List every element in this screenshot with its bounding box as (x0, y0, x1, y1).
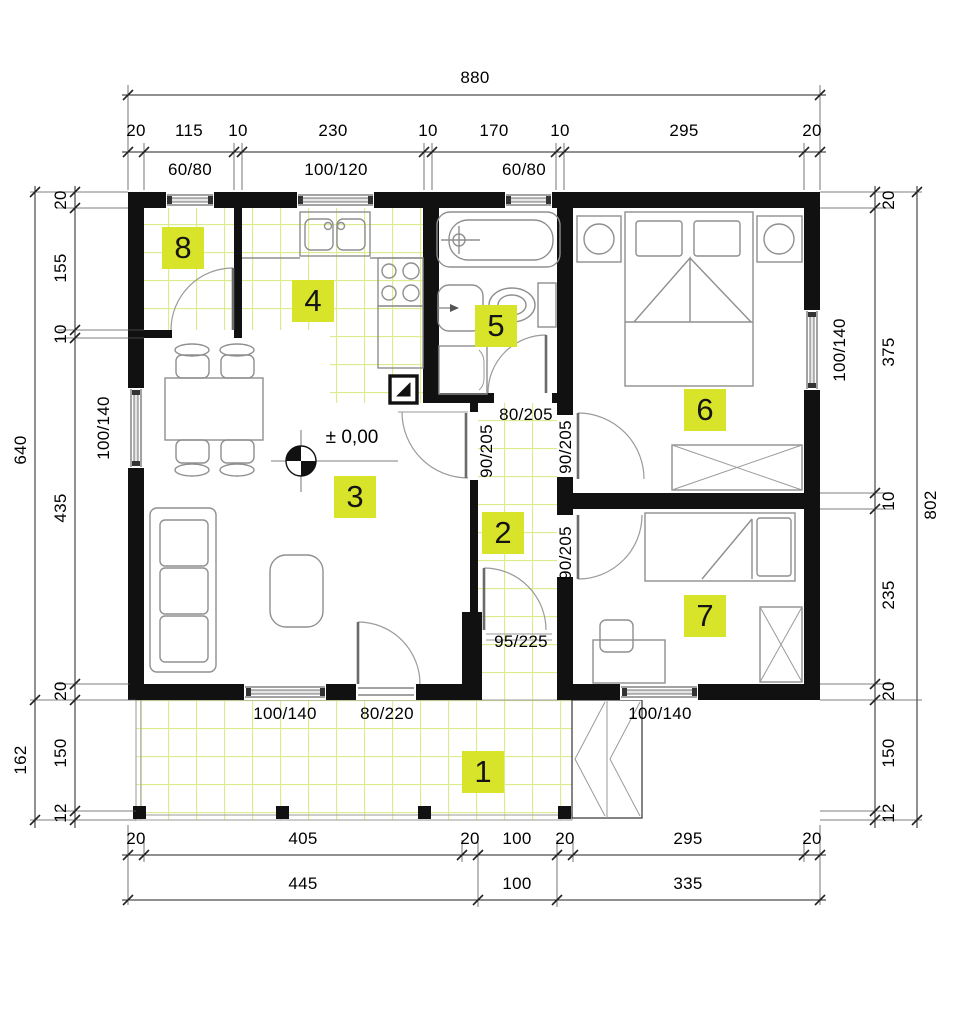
dim-left-t0: 150 (51, 738, 71, 767)
dim-top-4: 10 (418, 121, 438, 141)
window-bed7 (620, 684, 698, 700)
dim-bot-5: 295 (673, 829, 702, 849)
window-bed6 (804, 310, 820, 390)
dim-top-3: 230 (318, 121, 347, 141)
label-door-terrace: 80/220 (360, 704, 414, 724)
label-window-right: 100/140 (830, 318, 850, 382)
dim-right-t0: 150 (879, 738, 899, 767)
dim-bot-1: 405 (288, 829, 317, 849)
wardrobe-bed7 (760, 607, 802, 682)
label-door-entrance: 95/225 (494, 632, 548, 652)
dim-left-0: 20 (51, 190, 71, 210)
dim-left-t1: 12 (51, 803, 71, 823)
boiler-icon (390, 376, 417, 403)
room-label-5: 5 (475, 305, 517, 347)
label-window-left: 100/140 (94, 396, 114, 460)
dim-right-0: 20 (879, 190, 899, 210)
washing-machine (439, 346, 487, 394)
window-kitchen (297, 192, 374, 208)
floor-plan-canvas: 880 20 115 10 230 10 170 10 295 20 60/80… (0, 0, 954, 1024)
dim-left-2: 10 (51, 324, 71, 344)
window-room8 (166, 192, 214, 208)
terrace-door-threshold (356, 684, 416, 700)
nightstand-left (577, 216, 621, 262)
window-bath (505, 192, 552, 208)
label-window-kitchen: 100/120 (304, 160, 368, 180)
room-label-8: 8 (162, 227, 204, 269)
dim-bot-outer-0: 445 (288, 874, 317, 894)
dim-left-terrace: 162 (11, 745, 31, 774)
bedroom6-furniture (577, 212, 802, 490)
dim-bot-6: 20 (802, 829, 822, 849)
room-label-4: 4 (292, 280, 334, 322)
dim-right-1: 375 (879, 337, 899, 366)
dim-right-overall: 802 (921, 490, 941, 519)
dim-bot-4: 20 (555, 829, 575, 849)
desk (593, 620, 665, 683)
dim-bot-2: 20 (460, 829, 480, 849)
dim-left-3: 435 (51, 493, 71, 522)
dim-left-overall: 640 (11, 435, 31, 464)
label-door-hall-living: 90/205 (477, 424, 497, 478)
room-label-1: 1 (462, 751, 504, 793)
wardrobe-bed6 (672, 445, 802, 490)
dim-top-0: 20 (126, 121, 146, 141)
level-mark-label: ± 0,00 (326, 427, 379, 449)
dim-left-1: 155 (51, 253, 71, 282)
room-label-3: 3 (334, 476, 376, 518)
label-window-living-bottom: 100/140 (253, 704, 317, 724)
double-bed (625, 212, 753, 386)
dim-bot-0: 20 (126, 829, 146, 849)
dim-top-7: 295 (669, 121, 698, 141)
label-window-bed7: 100/140 (628, 704, 692, 724)
label-door-bed7: 90/205 (556, 526, 576, 580)
door-bed7 (578, 515, 642, 579)
dim-right-3: 235 (879, 580, 899, 609)
bathtub (437, 212, 560, 267)
dim-overall-width: 880 (460, 68, 489, 88)
window-living-left (128, 388, 144, 468)
dim-top-6: 10 (550, 121, 570, 141)
floor-plan-drawing (0, 0, 954, 1024)
label-door-bath: 80/205 (499, 405, 553, 425)
door-living-hall (398, 412, 468, 478)
dim-left-4: 20 (51, 681, 71, 701)
dim-top-1: 115 (175, 121, 203, 141)
dim-right-4: 20 (879, 681, 899, 701)
sofa (150, 508, 216, 672)
coffee-table (270, 555, 323, 627)
label-window-bath: 60/80 (502, 160, 546, 180)
dim-right-2: 10 (879, 491, 899, 511)
dim-bot-outer-2: 335 (673, 874, 702, 894)
room-label-2: 2 (482, 512, 524, 554)
room-label-7: 7 (684, 595, 726, 637)
dim-top-2: 10 (228, 121, 248, 141)
dim-bot-3: 100 (502, 829, 531, 849)
dining-table (165, 344, 263, 476)
dim-bot-outer-1: 100 (502, 874, 531, 894)
label-window-room8: 60/80 (168, 160, 212, 180)
door-bed6 (578, 413, 644, 479)
single-bed (645, 513, 795, 581)
nightstand-right (757, 216, 802, 262)
label-door-bed6: 90/205 (556, 420, 576, 474)
dim-top-5: 170 (479, 121, 508, 141)
window-living-bottom (244, 684, 326, 700)
bathroom-fixtures (437, 212, 560, 394)
dim-top-8: 20 (802, 121, 822, 141)
door-terrace (358, 622, 420, 684)
dim-right-t1: 12 (879, 803, 899, 823)
room-label-6: 6 (684, 389, 726, 431)
